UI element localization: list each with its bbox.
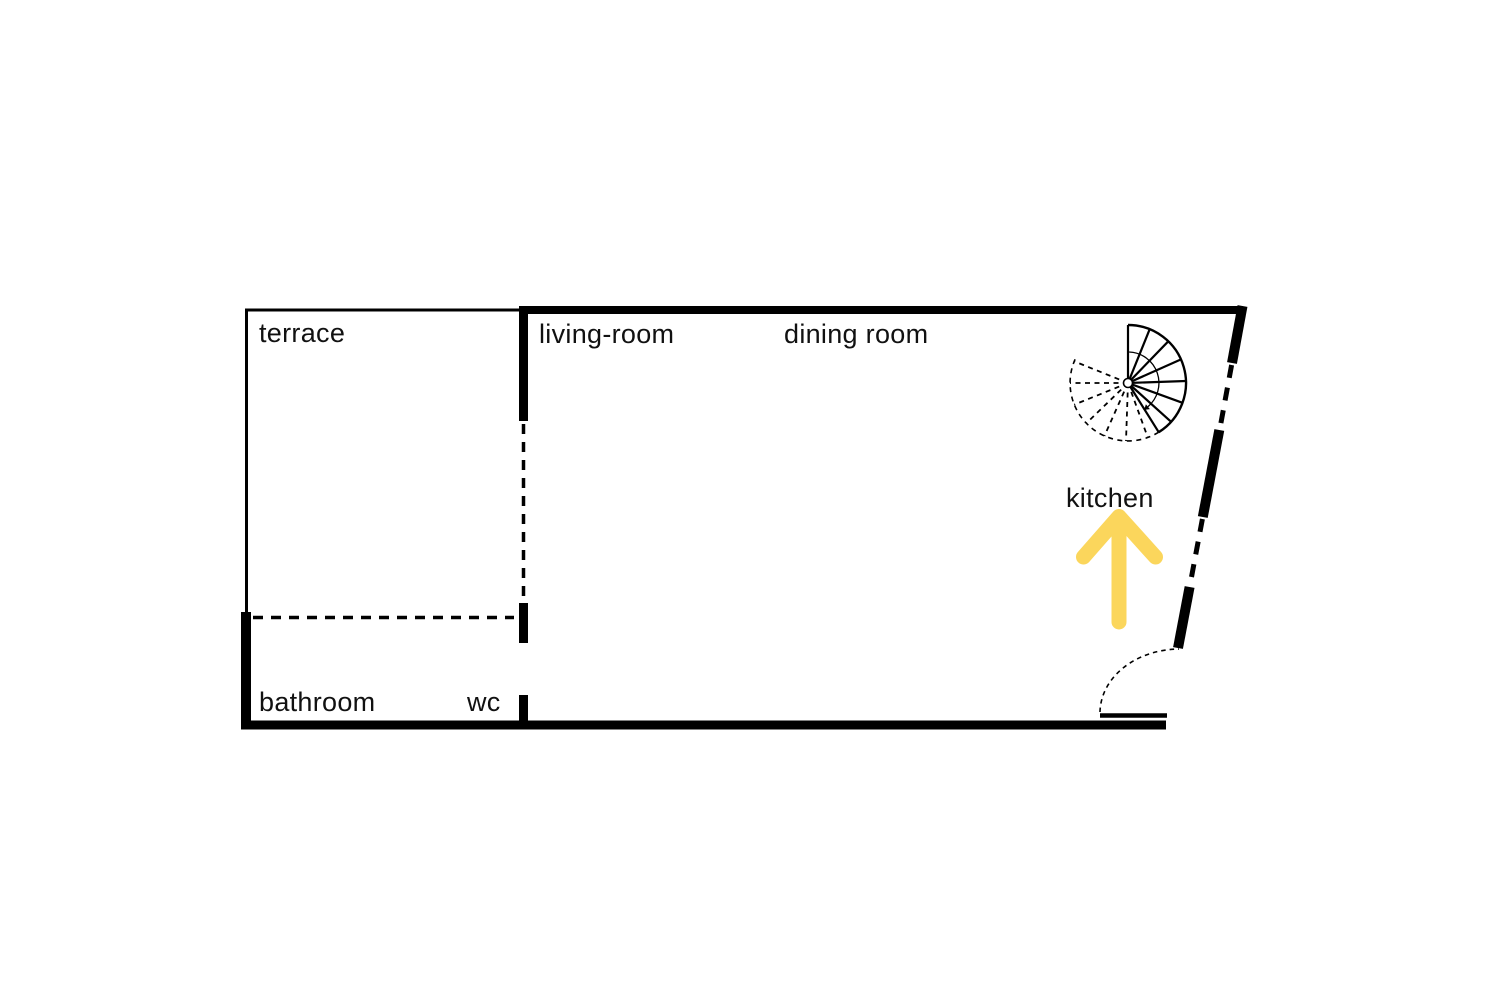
right-wall-window-dashed-2: [1190, 519, 1202, 585]
entry-door: [1100, 649, 1179, 716]
right-slanted-wall: [1178, 306, 1243, 648]
staircase-solid-treads: [1128, 325, 1186, 432]
main-walls: [241, 306, 1243, 730]
floor-plan: terrace living-room dining room kitchen …: [0, 0, 1500, 1000]
right-wall-segment-3: [1178, 587, 1190, 648]
kitchen-arrow: [1084, 517, 1156, 623]
right-wall-window-dashed-1: [1220, 365, 1232, 428]
floor-plan-drawing: [0, 0, 1500, 1000]
terrace-outline: [245, 309, 521, 618]
spiral-staircase-icon: [1070, 325, 1186, 441]
right-wall-segment-1: [1232, 306, 1243, 363]
room-label-living-room: living-room: [539, 320, 674, 350]
room-label-terrace: terrace: [259, 319, 345, 349]
room-label-bathroom: bathroom: [259, 688, 375, 718]
door-swing-arc-icon: [1100, 649, 1179, 712]
room-label-wc: wc: [467, 688, 501, 718]
staircase-center-post: [1124, 379, 1133, 388]
room-label-dining-room: dining room: [784, 320, 928, 350]
right-wall-segment-2: [1203, 430, 1220, 517]
room-label-kitchen: kitchen: [1066, 484, 1154, 514]
